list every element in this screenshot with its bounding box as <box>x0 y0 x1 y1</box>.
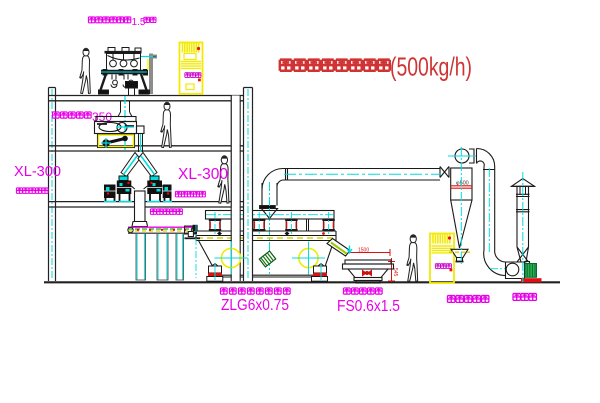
svg-text:1500: 1500 <box>358 248 369 254</box>
svg-text:XL-300: XL-300 <box>178 166 228 183</box>
svg-text:1.5: 1.5 <box>132 17 146 28</box>
svg-text:φ500: φ500 <box>456 181 469 187</box>
svg-text:(500kg/h): (500kg/h) <box>390 52 472 82</box>
svg-text:FS0.6x1.5: FS0.6x1.5 <box>337 298 400 315</box>
svg-text:ZLG6x0.75: ZLG6x0.75 <box>221 297 289 314</box>
svg-text:XL-300: XL-300 <box>14 163 61 180</box>
